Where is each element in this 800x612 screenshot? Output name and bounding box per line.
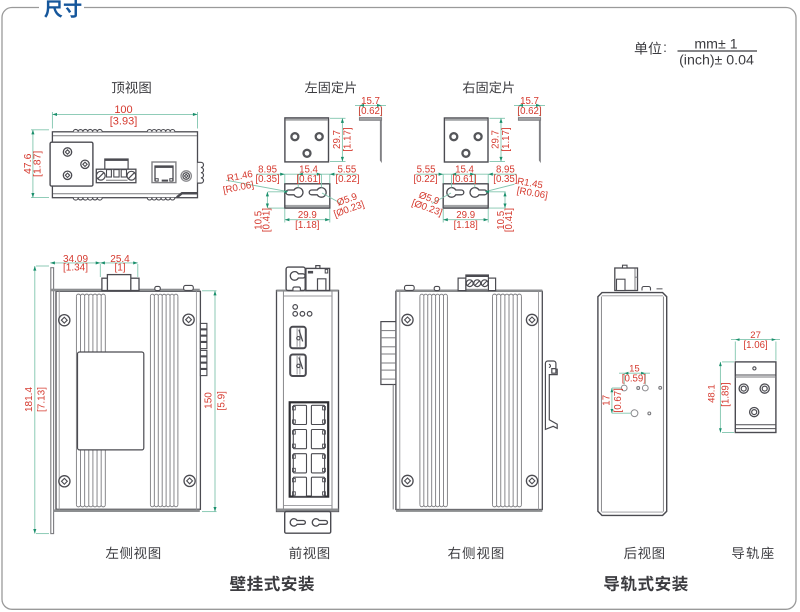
svg-text:[1.17]: [1.17] xyxy=(342,127,353,151)
svg-text:[0.35]: [0.35] xyxy=(255,174,279,185)
svg-text:[0.41]: [0.41] xyxy=(262,208,273,232)
svg-text:[1.18]: [1.18] xyxy=(295,220,319,231)
svg-text:48.1: 48.1 xyxy=(706,384,717,403)
svg-text:[0.41]: [0.41] xyxy=(504,208,515,232)
svg-text:(inch)± 0.04: (inch)± 0.04 xyxy=(679,53,754,69)
svg-text:[3.93]: [3.93] xyxy=(110,116,138,128)
svg-text:[5.9]: [5.9] xyxy=(216,391,227,411)
svg-text:150: 150 xyxy=(204,392,215,409)
svg-text::: : xyxy=(663,40,667,55)
svg-text:[0.67]: [0.67] xyxy=(613,388,624,412)
svg-text:100: 100 xyxy=(114,104,132,116)
svg-text:[1.34]: [1.34] xyxy=(63,263,88,274)
svg-text:mm± 1: mm± 1 xyxy=(694,36,737,52)
svg-text:[0.62]: [0.62] xyxy=(517,106,541,117)
svg-text:[0.62]: [0.62] xyxy=(358,106,382,117)
svg-text:[1.87]: [1.87] xyxy=(31,151,43,177)
svg-text:[1]: [1] xyxy=(114,263,125,274)
svg-text:[1.89]: [1.89] xyxy=(720,382,731,406)
svg-text:[1.18]: [1.18] xyxy=(454,220,478,231)
svg-text:[1.17]: [1.17] xyxy=(501,127,512,151)
svg-text:[7.13]: [7.13] xyxy=(36,387,47,412)
svg-text:[0.22]: [0.22] xyxy=(413,174,437,185)
svg-text:[0.35]: [0.35] xyxy=(493,174,517,185)
svg-text:[0.61]: [0.61] xyxy=(452,174,476,185)
svg-text:17: 17 xyxy=(601,395,612,406)
svg-text:[1.06]: [1.06] xyxy=(743,340,767,351)
svg-text:181.4: 181.4 xyxy=(24,387,35,412)
svg-text:[0.61]: [0.61] xyxy=(296,174,320,185)
svg-text:[0.22]: [0.22] xyxy=(335,174,359,185)
svg-text:[0.59]: [0.59] xyxy=(622,374,646,385)
